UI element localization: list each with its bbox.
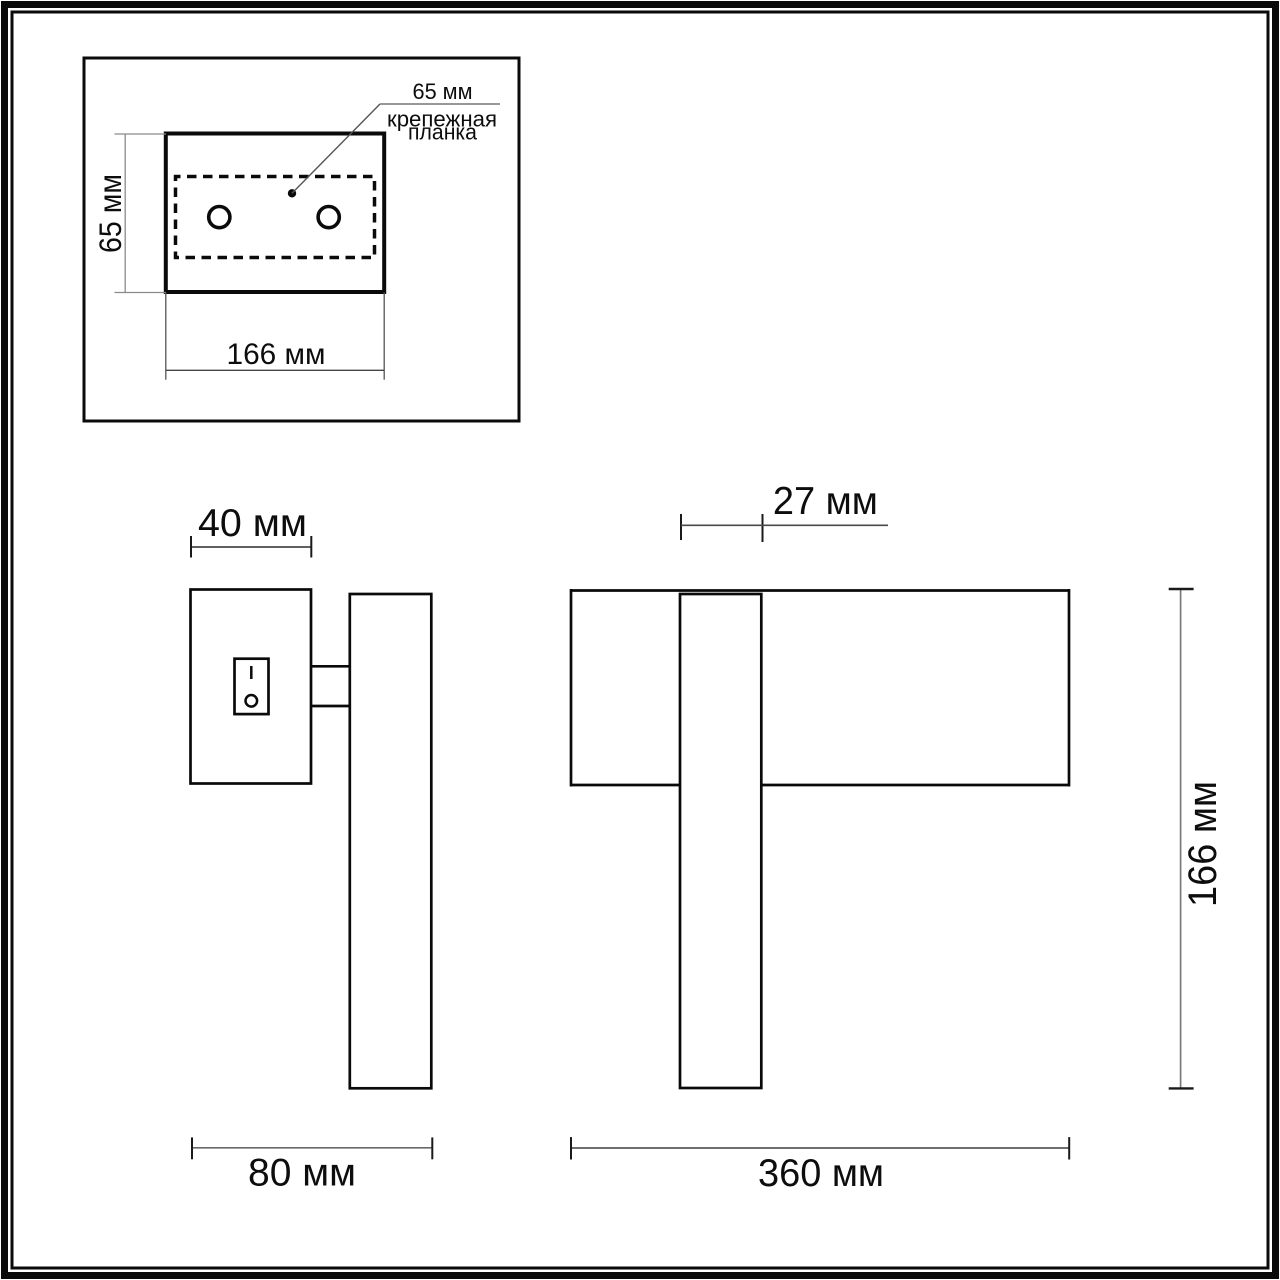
svg-text:планка: планка bbox=[408, 120, 478, 145]
svg-text:360 мм: 360 мм bbox=[758, 1152, 884, 1195]
svg-text:40 мм: 40 мм bbox=[198, 502, 307, 545]
svg-text:166 мм: 166 мм bbox=[227, 338, 326, 371]
svg-text:65 мм: 65 мм bbox=[92, 174, 128, 253]
svg-text:65 мм: 65 мм bbox=[413, 79, 473, 104]
svg-text:166 мм: 166 мм bbox=[1181, 781, 1225, 907]
svg-text:27 мм: 27 мм bbox=[773, 480, 878, 523]
svg-text:80 мм: 80 мм bbox=[248, 1152, 356, 1195]
